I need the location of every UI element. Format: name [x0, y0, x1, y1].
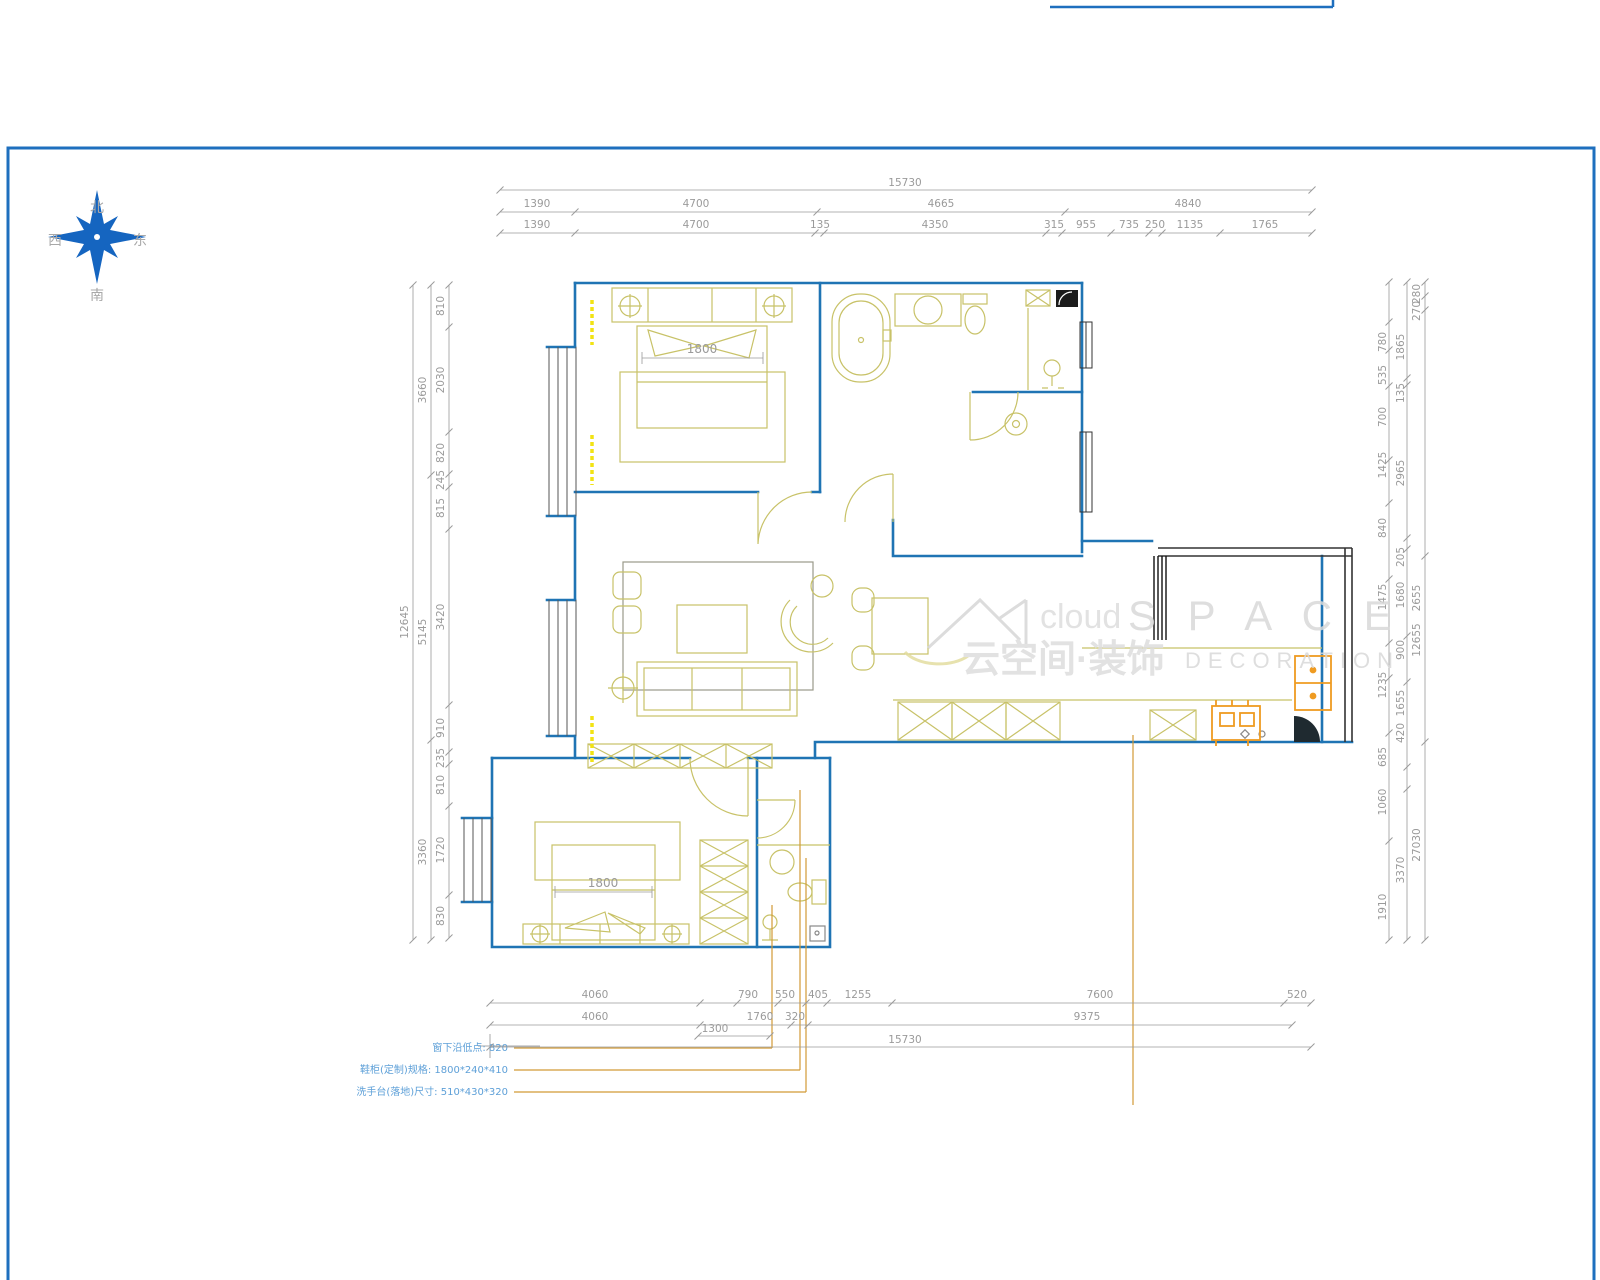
dim-label: 12645: [399, 605, 411, 638]
dining-chair-1: [852, 588, 874, 612]
dim-label: 1425: [1377, 452, 1389, 479]
dim-label: 4350: [922, 219, 949, 231]
dim-label: 4700: [683, 219, 710, 231]
dim-label: 1765: [1252, 219, 1279, 231]
annotation-note-3: 洗手台(落地)尺寸: 510*430*320: [356, 1085, 508, 1098]
watermark-en: DECORATION: [1185, 648, 1400, 673]
dim-label: 4060: [582, 1011, 609, 1023]
dim-label: 315: [1044, 219, 1064, 231]
armchair-2: [613, 606, 641, 633]
dim-label: 15730: [888, 1034, 921, 1046]
dining-chair-2: [852, 646, 874, 670]
lounge-chair: [781, 600, 833, 652]
dim-label: 135: [810, 219, 830, 231]
dim-label: 535: [1377, 365, 1389, 385]
dim-label: 3370: [1395, 857, 1407, 884]
door-arc-bath2: [757, 800, 795, 838]
windows: [464, 322, 1092, 902]
compass-rose: 北 南 西 东: [48, 190, 147, 304]
dim-label: 820: [435, 443, 447, 463]
dim-label: 735: [1119, 219, 1139, 231]
watermark-cn: 云空间·装饰: [962, 639, 1165, 681]
toilet: [965, 306, 985, 334]
dim-label: 12655: [1411, 623, 1423, 656]
dim-label: 3660: [417, 377, 429, 404]
dim-label: 780: [1377, 332, 1389, 352]
dim-label: 27030: [1411, 828, 1423, 861]
floorplan-canvas: 北 南 西 东: [0, 0, 1600, 1280]
dim-label: 205: [1395, 547, 1407, 567]
bed-dimensions: [555, 352, 763, 898]
watermark-word-light: cloud: [1040, 598, 1121, 636]
dim-label: 4840: [1175, 198, 1202, 210]
basin: [914, 296, 942, 324]
dim-label: 815: [435, 498, 447, 518]
dim-label: 1300: [702, 1023, 729, 1035]
dim-label: 2655: [1411, 585, 1423, 612]
dim-label: 1135: [1177, 219, 1204, 231]
dim-label: 1255: [845, 989, 872, 1001]
dim-label: 1235: [1377, 672, 1389, 699]
dim-label: 405: [808, 989, 828, 1001]
side-table: [811, 575, 833, 597]
corner-sink: [1294, 716, 1320, 742]
compass-north-label: 北: [90, 200, 104, 216]
dim-label: 15730: [888, 177, 921, 189]
vanity: [895, 294, 961, 326]
compass-west-label: 西: [48, 233, 62, 249]
dim-label: 7600: [1087, 989, 1114, 1001]
compass-south-label: 南: [90, 288, 104, 304]
dim-label: 700: [1377, 407, 1389, 427]
dim-label: 270: [1411, 301, 1423, 321]
dim-label: 520: [1287, 989, 1307, 1001]
living-rug: [623, 562, 813, 690]
dim-label: 135: [1395, 383, 1407, 403]
bed2-rug: [535, 822, 680, 880]
dim-label: 830: [435, 906, 447, 926]
dim-label: 790: [738, 989, 758, 1001]
washing-machine: [1005, 413, 1027, 435]
annotation-note-2: 鞋柜(定制)规格: 1800*240*410: [360, 1063, 508, 1076]
door-arc-wc: [970, 392, 1018, 440]
annotation-notes: 窗下沿低点: 820 鞋柜(定制)规格: 1800*240*410 洗手台(落地…: [356, 1041, 508, 1098]
bed1-width-label: 1800: [687, 342, 718, 356]
toilet2-tank: [812, 880, 826, 904]
dim-label: 810: [435, 775, 447, 795]
dim-label: 840: [1377, 518, 1389, 538]
dim-label: 685: [1377, 747, 1389, 767]
shower-head: [763, 915, 777, 929]
dim-label: 3420: [435, 604, 447, 631]
door-arc-bath: [845, 474, 893, 522]
door-arc-bed1: [758, 492, 812, 544]
dim-label: 910: [435, 718, 447, 738]
dim-label: 955: [1076, 219, 1096, 231]
plant: [1044, 360, 1060, 376]
dim-label: 1865: [1395, 334, 1407, 361]
dim-label: 5145: [417, 619, 429, 646]
dim-label: 1760: [747, 1011, 774, 1023]
watermark: cloud S P A C E 云空间·装饰 DECORATION: [905, 592, 1402, 681]
basin-2: [770, 850, 794, 874]
dim-label: 320: [785, 1011, 805, 1023]
dim-label: 1655: [1395, 690, 1407, 717]
dining-table: [872, 598, 928, 654]
dim-label: 245: [435, 470, 447, 490]
dim-label: 4665: [928, 198, 955, 210]
bed1-headboard: [612, 288, 792, 322]
dim-label: 4060: [582, 989, 609, 1001]
dim-label: 9375: [1074, 1011, 1101, 1023]
coffee-table: [677, 605, 747, 653]
dim-label: 1060: [1377, 789, 1389, 816]
watermark-word-main: S P A C E: [1128, 592, 1402, 639]
dim-label: 2965: [1395, 460, 1407, 487]
dim-label: 3360: [417, 839, 429, 866]
dim-label: 2030: [435, 367, 447, 394]
door-arc-bed2: [690, 758, 748, 816]
annotation-note-1: 窗下沿低点: 820: [432, 1041, 508, 1054]
toilet-tank: [963, 294, 987, 304]
cad-floorplan-page: 北 南 西 东: [0, 0, 1600, 1280]
sofa-outline: [637, 662, 797, 716]
bed2-pillows: [565, 912, 645, 934]
dim-label: 4700: [683, 198, 710, 210]
dim-label: 810: [435, 296, 447, 316]
compass-east-label: 东: [133, 233, 147, 249]
dim-label: 420: [1395, 723, 1407, 743]
dim-label: 235: [435, 748, 447, 768]
bed2-width-label: 1800: [588, 876, 619, 890]
dim-label: 1720: [435, 837, 447, 864]
dim-label: 1390: [524, 198, 551, 210]
dim-label: 550: [775, 989, 795, 1001]
dim-label: 1390: [524, 219, 551, 231]
bed1-rug: [620, 372, 785, 462]
dim-label: 1910: [1377, 894, 1389, 921]
dim-label: 250: [1145, 219, 1165, 231]
sheet-frame: [8, 0, 1594, 1280]
armchair-1: [613, 572, 641, 599]
